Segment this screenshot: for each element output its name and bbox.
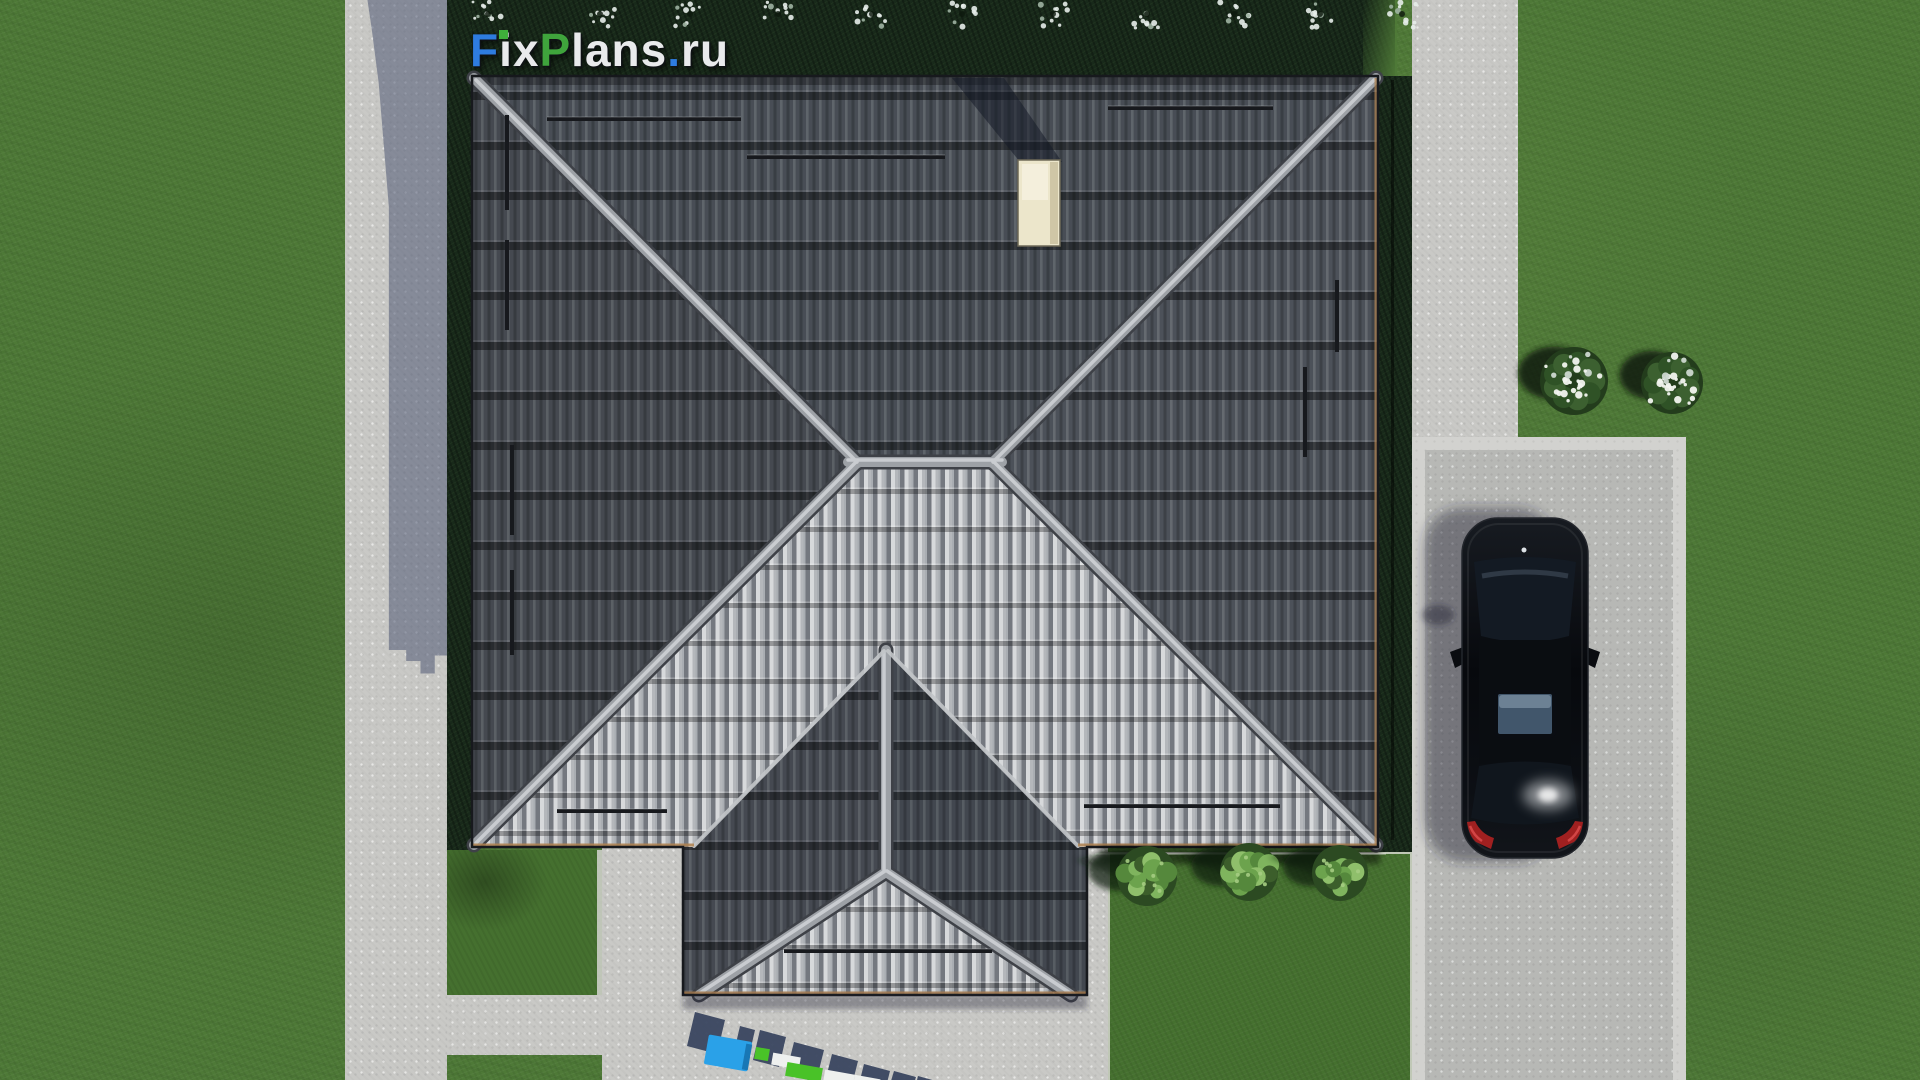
logo-letter: n	[612, 24, 641, 76]
logo-letter: .	[667, 24, 681, 76]
white-flower-bushes	[1518, 346, 1703, 415]
skylight	[1018, 160, 1060, 246]
logo-letter: s	[641, 24, 668, 76]
logo-letter: P	[539, 24, 571, 76]
logo-letter: x	[513, 24, 540, 76]
aerial-house-render: FixPlans.ru	[0, 0, 1920, 1080]
eave-shadow-patio	[683, 995, 1087, 1009]
logo-i-dot	[499, 30, 508, 39]
logo-letter: u	[700, 24, 729, 76]
logo-letter: r	[681, 24, 700, 76]
logo-letter: i	[499, 27, 513, 73]
car	[1422, 508, 1600, 862]
logo-letter: l	[571, 24, 585, 76]
logo-letter: F	[470, 24, 499, 76]
site-logo: FixPlans.ru	[470, 27, 729, 73]
render-overlay	[0, 0, 1920, 1080]
garden-bushes	[1075, 843, 1368, 906]
car-antenna	[1522, 548, 1527, 553]
logo-letter: a	[585, 24, 612, 76]
ground-watermark	[687, 1012, 936, 1080]
